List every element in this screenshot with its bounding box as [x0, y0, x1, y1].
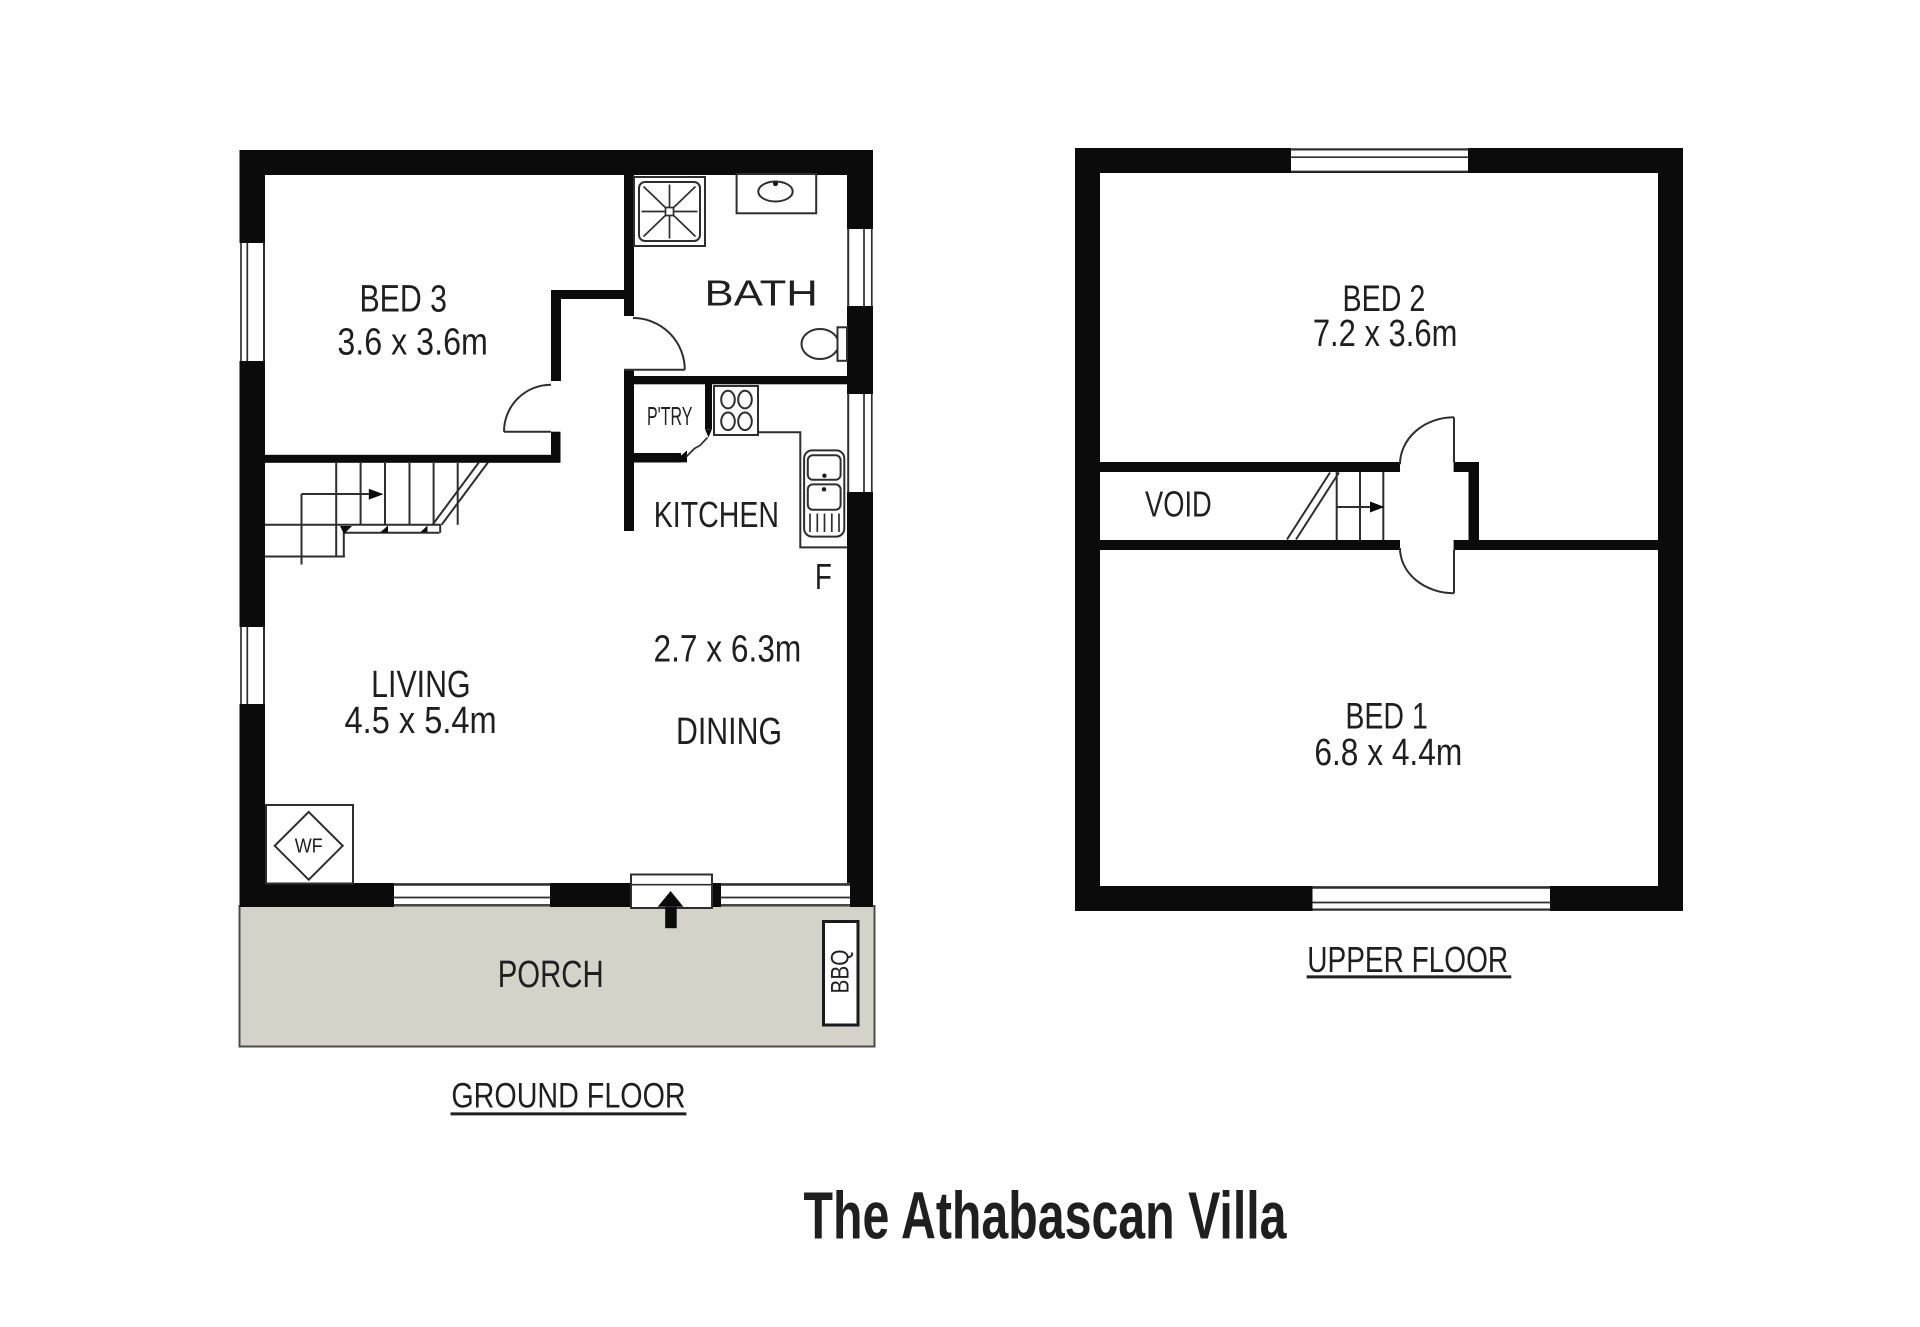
svg-text:F: F: [815, 556, 832, 597]
svg-text:P'TRY: P'TRY: [647, 401, 692, 431]
svg-text:6.8 x 4.4m: 6.8 x 4.4m: [1314, 732, 1462, 774]
svg-text:KITCHEN: KITCHEN: [654, 494, 779, 535]
svg-text:PORCH: PORCH: [498, 954, 604, 996]
svg-text:4.5 x 5.4m: 4.5 x 5.4m: [345, 700, 497, 742]
svg-text:WF: WF: [295, 836, 323, 858]
svg-text:DINING: DINING: [676, 711, 782, 753]
svg-text:BED 1: BED 1: [1345, 696, 1428, 737]
svg-text:UPPER FLOOR: UPPER FLOOR: [1307, 939, 1508, 980]
svg-text:7.2 x 3.6m: 7.2 x 3.6m: [1313, 313, 1458, 355]
svg-text:BED 3: BED 3: [359, 279, 447, 321]
svg-text:GROUND FLOOR: GROUND FLOOR: [451, 1077, 685, 1116]
svg-text:BATH: BATH: [705, 272, 818, 313]
svg-text:BBQ: BBQ: [827, 950, 855, 994]
svg-text:2.7 x 6.3m: 2.7 x 6.3m: [654, 629, 802, 671]
svg-text:VOID: VOID: [1145, 484, 1212, 525]
svg-text:3.6 x 3.6m: 3.6 x 3.6m: [337, 321, 488, 363]
svg-text:The Athabascan Villa: The Athabascan Villa: [804, 1179, 1288, 1254]
